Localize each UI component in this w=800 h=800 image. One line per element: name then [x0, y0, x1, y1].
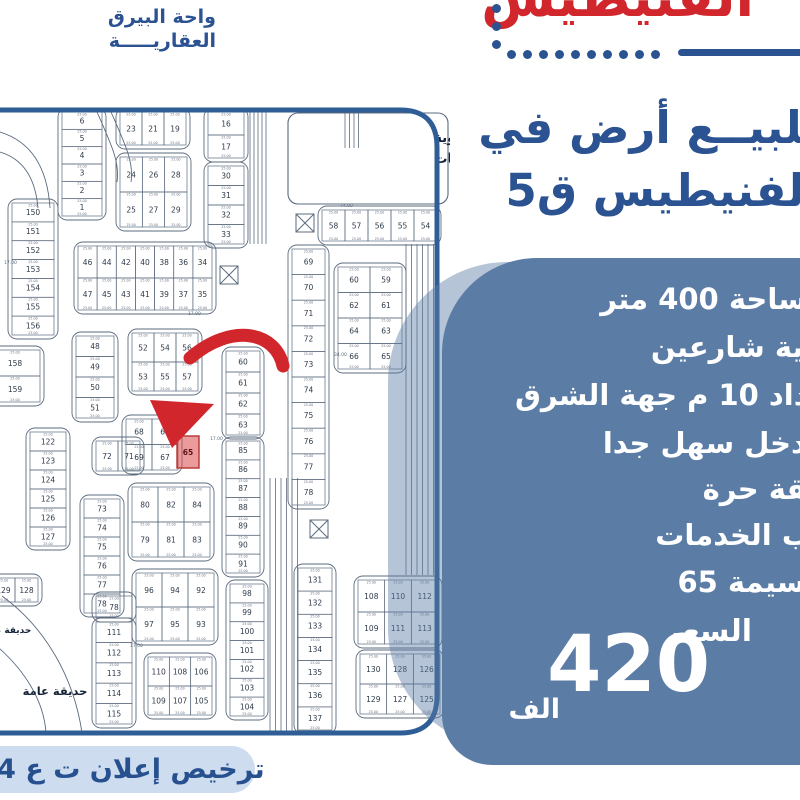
brand-line1: واحة البيرق	[0, 5, 216, 29]
svg-text:82: 82	[166, 500, 176, 509]
svg-text:104: 104	[240, 702, 255, 711]
svg-text:25.00: 25.00	[10, 376, 19, 380]
svg-text:25: 25	[126, 205, 136, 214]
svg-text:25.00: 25.00	[22, 598, 31, 602]
svg-text:46: 46	[83, 258, 93, 267]
svg-text:129: 129	[0, 586, 11, 595]
svg-text:76: 76	[304, 437, 314, 446]
svg-text:25.00: 25.00	[166, 522, 175, 526]
svg-text:25.00: 25.00	[198, 246, 207, 250]
svg-text:25.00: 25.00	[140, 522, 149, 526]
svg-text:25.00: 25.00	[367, 612, 376, 616]
svg-text:25.00: 25.00	[43, 470, 52, 474]
svg-text:25.00: 25.00	[182, 333, 191, 337]
svg-text:25.00: 25.00	[160, 445, 169, 449]
svg-text:25.00: 25.00	[109, 684, 118, 688]
svg-text:25.00: 25.00	[349, 344, 358, 348]
svg-text:152: 152	[26, 246, 41, 255]
svg-text:25.00: 25.00	[398, 237, 407, 241]
svg-text:25.00: 25.00	[28, 317, 37, 321]
svg-text:25.00: 25.00	[97, 499, 106, 503]
svg-text:25.00: 25.00	[304, 249, 313, 253]
svg-text:89: 89	[238, 522, 248, 531]
svg-text:25.00: 25.00	[144, 573, 153, 577]
svg-text:25.00: 25.00	[140, 278, 149, 282]
svg-text:25.00: 25.00	[109, 704, 118, 708]
svg-text:136: 136	[308, 691, 323, 700]
decor-blue-line	[678, 49, 800, 56]
svg-text:32: 32	[221, 211, 231, 220]
svg-text:85: 85	[238, 446, 248, 455]
svg-text:92: 92	[196, 586, 206, 595]
svg-text:137: 137	[308, 714, 323, 723]
svg-text:25.00: 25.00	[140, 306, 149, 310]
cadastral-map: رسة ثانويةبنات625.00525.00425.00325.0022…	[0, 0, 450, 800]
svg-text:25.00: 25.00	[238, 351, 247, 355]
svg-text:109: 109	[152, 696, 167, 705]
svg-text:25.00: 25.00	[304, 301, 313, 305]
svg-text:25.00: 25.00	[159, 306, 168, 310]
svg-text:25.00: 25.00	[329, 210, 338, 214]
svg-text:57: 57	[182, 372, 192, 381]
svg-text:25.00: 25.00	[90, 336, 99, 340]
svg-text:75: 75	[304, 411, 314, 420]
svg-text:41: 41	[140, 290, 150, 299]
svg-text:25.00: 25.00	[97, 594, 106, 598]
svg-text:25.00: 25.00	[179, 278, 188, 282]
svg-text:25.00: 25.00	[381, 293, 390, 297]
ad-title: للبيــع أرض في الفنيطيس ق5	[460, 96, 800, 222]
svg-text:78: 78	[97, 599, 107, 608]
svg-text:72: 72	[304, 334, 314, 343]
svg-text:25.00: 25.00	[28, 279, 37, 283]
svg-text:33: 33	[221, 230, 231, 239]
svg-text:25.00: 25.00	[160, 333, 169, 337]
svg-text:25.00: 25.00	[126, 157, 135, 161]
svg-text:122: 122	[41, 437, 56, 446]
feature-line: زاوية شارعين	[651, 330, 800, 364]
svg-text:25.00: 25.00	[109, 720, 118, 724]
svg-text:25.00: 25.00	[149, 192, 158, 196]
feature-line: وثيقة حرة	[703, 472, 800, 506]
svg-text:6: 6	[80, 116, 85, 125]
svg-text:67: 67	[160, 453, 170, 462]
dot	[603, 50, 612, 59]
svg-text:123: 123	[41, 456, 56, 465]
svg-text:17: 17	[221, 142, 231, 151]
svg-text:25.00: 25.00	[221, 166, 230, 170]
svg-text:2: 2	[80, 186, 85, 195]
dot	[492, 40, 501, 49]
svg-text:25.00: 25.00	[196, 607, 205, 611]
svg-text:25.00: 25.00	[77, 164, 86, 168]
svg-text:25.00: 25.00	[121, 278, 130, 282]
svg-text:24: 24	[126, 170, 136, 179]
dot	[635, 50, 644, 59]
svg-text:25.00: 25.00	[109, 622, 118, 626]
svg-text:25.00: 25.00	[90, 398, 99, 402]
svg-text:25.00: 25.00	[375, 237, 384, 241]
svg-text:73: 73	[97, 504, 107, 513]
svg-text:25.00: 25.00	[310, 684, 319, 688]
svg-text:133: 133	[308, 622, 323, 631]
svg-text:131: 131	[308, 575, 323, 584]
svg-text:25.00: 25.00	[28, 222, 37, 226]
svg-text:25.00: 25.00	[238, 414, 247, 418]
svg-text:25.00: 25.00	[166, 553, 175, 557]
svg-text:25.00: 25.00	[144, 637, 153, 641]
svg-text:25.00: 25.00	[221, 135, 230, 139]
svg-text:25.00: 25.00	[242, 679, 251, 683]
svg-text:51: 51	[90, 404, 100, 413]
svg-text:25.00: 25.00	[198, 278, 207, 282]
svg-text:25.00: 25.00	[197, 711, 206, 715]
svg-text:63: 63	[238, 420, 248, 429]
svg-text:42: 42	[121, 258, 131, 267]
svg-text:77: 77	[97, 580, 107, 589]
svg-text:74.00: 74.00	[340, 203, 353, 209]
svg-text:25.00: 25.00	[398, 210, 407, 214]
svg-text:25.00: 25.00	[126, 223, 135, 227]
svg-text:49: 49	[90, 363, 100, 372]
svg-text:25.00: 25.00	[138, 333, 147, 337]
svg-text:25.00: 25.00	[138, 362, 147, 366]
brand-line2: العقاريـــــة	[0, 29, 216, 53]
svg-text:56: 56	[375, 221, 385, 230]
svg-text:25.00: 25.00	[242, 584, 251, 588]
svg-text:25.00: 25.00	[197, 657, 206, 661]
svg-text:25.00: 25.00	[182, 387, 191, 391]
svg-text:25.00: 25.00	[102, 278, 111, 282]
license-pill: ترخيص إعلان ت ع 64	[0, 746, 255, 793]
svg-text:25.00: 25.00	[304, 377, 313, 381]
svg-text:36: 36	[179, 258, 189, 267]
svg-text:25.00: 25.00	[170, 573, 179, 577]
svg-text:25.00: 25.00	[140, 553, 149, 557]
svg-text:159: 159	[8, 385, 23, 394]
svg-text:61: 61	[238, 378, 248, 387]
dot	[507, 50, 516, 59]
svg-text:88: 88	[238, 503, 248, 512]
svg-text:106: 106	[194, 667, 209, 676]
svg-text:25.00: 25.00	[375, 210, 384, 214]
svg-text:25.00: 25.00	[121, 246, 130, 250]
svg-text:90: 90	[238, 541, 248, 550]
svg-text:25.00: 25.00	[90, 357, 99, 361]
dot	[492, 4, 501, 13]
svg-text:25.00: 25.00	[28, 203, 37, 207]
svg-text:28: 28	[171, 170, 181, 179]
svg-text:25.00: 25.00	[369, 654, 378, 658]
svg-text:25.00: 25.00	[10, 398, 19, 402]
svg-text:54: 54	[160, 343, 170, 352]
svg-text:25.00: 25.00	[0, 578, 8, 582]
svg-text:25.00: 25.00	[102, 441, 111, 445]
svg-text:108: 108	[173, 667, 188, 676]
svg-text:31: 31	[221, 191, 231, 200]
svg-text:17.00: 17.00	[4, 260, 17, 266]
svg-text:155: 155	[26, 303, 41, 312]
svg-text:50: 50	[90, 383, 100, 392]
svg-text:25.00: 25.00	[192, 522, 201, 526]
svg-text:25.00: 25.00	[159, 246, 168, 250]
svg-text:76: 76	[97, 561, 107, 570]
svg-text:25.00: 25.00	[304, 454, 313, 458]
svg-text:25.00: 25.00	[140, 246, 149, 250]
svg-text:75: 75	[97, 542, 107, 551]
svg-text:125: 125	[41, 494, 56, 503]
svg-text:154: 154	[26, 284, 41, 293]
svg-text:25.00: 25.00	[148, 112, 157, 116]
svg-text:25.00: 25.00	[196, 637, 205, 641]
svg-text:25.00: 25.00	[381, 267, 390, 271]
svg-text:79: 79	[140, 535, 150, 544]
svg-text:132: 132	[308, 599, 323, 608]
svg-text:25.00: 25.00	[121, 306, 130, 310]
svg-text:95: 95	[170, 620, 180, 629]
svg-text:25.00: 25.00	[138, 387, 147, 391]
svg-text:62: 62	[349, 301, 359, 310]
svg-text:25.00: 25.00	[304, 352, 313, 356]
svg-text:25.00: 25.00	[221, 225, 230, 229]
svg-text:25.00: 25.00	[97, 518, 106, 522]
svg-text:25.00: 25.00	[310, 638, 319, 642]
svg-text:25.00: 25.00	[159, 278, 168, 282]
svg-text:112: 112	[107, 648, 122, 657]
svg-text:109: 109	[364, 624, 379, 633]
svg-text:30: 30	[221, 172, 231, 181]
svg-text:25.00: 25.00	[22, 578, 31, 582]
svg-text:19: 19	[170, 124, 180, 133]
svg-text:130: 130	[366, 665, 381, 674]
svg-text:25.00: 25.00	[160, 466, 169, 470]
highlighted-plot: 65	[177, 436, 199, 468]
svg-text:135: 135	[308, 668, 323, 677]
dot	[523, 50, 532, 59]
svg-text:37: 37	[179, 290, 189, 299]
svg-text:25.00: 25.00	[170, 607, 179, 611]
svg-text:74: 74	[304, 386, 314, 395]
svg-text:17.00: 17.00	[130, 643, 143, 649]
svg-text:25.00: 25.00	[349, 365, 358, 369]
svg-text:73: 73	[304, 360, 314, 369]
svg-text:111: 111	[107, 628, 122, 637]
svg-text:113: 113	[107, 669, 122, 678]
price-unit: الف	[508, 694, 560, 725]
decor-dots-vertical	[492, 4, 501, 49]
svg-text:153: 153	[26, 265, 41, 274]
svg-text:34: 34	[198, 258, 208, 267]
svg-text:25.00: 25.00	[221, 154, 230, 158]
svg-text:151: 151	[26, 227, 41, 236]
svg-text:25.00: 25.00	[242, 698, 251, 702]
svg-text:58: 58	[329, 221, 339, 230]
svg-text:25.00: 25.00	[304, 326, 313, 330]
svg-text:25.00: 25.00	[304, 429, 313, 433]
svg-text:25.00: 25.00	[77, 199, 86, 203]
svg-text:25.00: 25.00	[97, 575, 106, 579]
svg-text:25.00: 25.00	[221, 112, 230, 116]
svg-text:25.00: 25.00	[310, 707, 319, 711]
svg-text:25.00: 25.00	[304, 501, 313, 505]
svg-text:60: 60	[349, 276, 359, 285]
svg-text:25.00: 25.00	[367, 580, 376, 584]
price-value: 420	[547, 626, 710, 704]
svg-text:25.00: 25.00	[304, 403, 313, 407]
svg-text:127: 127	[393, 695, 408, 704]
svg-text:25.00: 25.00	[369, 710, 378, 714]
svg-text:54: 54	[421, 221, 431, 230]
svg-text:25.00: 25.00	[192, 553, 201, 557]
svg-text:25.00: 25.00	[171, 192, 180, 196]
svg-text:25.00: 25.00	[381, 344, 390, 348]
svg-text:150: 150	[26, 208, 41, 217]
svg-text:25.00: 25.00	[421, 210, 430, 214]
svg-text:25.00: 25.00	[421, 237, 430, 241]
svg-text:39: 39	[159, 290, 169, 299]
svg-text:25.00: 25.00	[154, 686, 163, 690]
svg-text:25.00: 25.00	[148, 141, 157, 145]
svg-text:25.00: 25.00	[192, 487, 201, 491]
svg-text:66: 66	[349, 352, 359, 361]
svg-text:45: 45	[102, 290, 112, 299]
svg-text:25.00: 25.00	[171, 157, 180, 161]
svg-text:25.00: 25.00	[43, 508, 52, 512]
svg-text:57: 57	[352, 221, 362, 230]
svg-text:25.00: 25.00	[144, 607, 153, 611]
dot	[651, 50, 660, 59]
svg-text:25.00: 25.00	[97, 556, 106, 560]
svg-text:25.00: 25.00	[352, 237, 361, 241]
svg-text:21: 21	[148, 124, 158, 133]
svg-text:65: 65	[183, 448, 193, 457]
svg-text:124: 124	[41, 475, 56, 484]
svg-text:25.00: 25.00	[134, 445, 143, 449]
feature-line: ارتداد 10 م جهة الشرق	[515, 378, 800, 412]
svg-text:78: 78	[109, 603, 119, 612]
svg-text:25.00: 25.00	[126, 141, 135, 145]
svg-text:25.00: 25.00	[149, 157, 158, 161]
svg-text:40: 40	[140, 258, 150, 267]
svg-text:25.00: 25.00	[310, 568, 319, 572]
svg-text:71: 71	[304, 309, 314, 318]
svg-text:129: 129	[366, 695, 381, 704]
svg-text:34.00: 34.00	[334, 352, 347, 358]
svg-text:61: 61	[381, 301, 391, 310]
svg-text:63: 63	[381, 327, 391, 336]
svg-text:25.00: 25.00	[221, 205, 230, 209]
svg-text:25.00: 25.00	[43, 451, 52, 455]
decor-dots-horizontal	[507, 50, 660, 59]
svg-text:25.00: 25.00	[238, 431, 247, 435]
svg-text:25.00: 25.00	[242, 712, 251, 716]
svg-text:25.00: 25.00	[77, 182, 86, 186]
svg-text:25.00: 25.00	[238, 479, 247, 483]
svg-text:97: 97	[144, 620, 154, 629]
dot	[555, 50, 564, 59]
svg-text:25.00: 25.00	[329, 237, 338, 241]
svg-text:25.00: 25.00	[349, 293, 358, 297]
svg-text:25.00: 25.00	[43, 432, 52, 436]
svg-text:25.00: 25.00	[28, 331, 37, 335]
svg-text:25.00: 25.00	[102, 306, 111, 310]
svg-text:69: 69	[134, 453, 144, 462]
svg-text:25.00: 25.00	[154, 711, 163, 715]
svg-text:25.00: 25.00	[352, 210, 361, 214]
svg-text:55: 55	[160, 372, 170, 381]
svg-text:156: 156	[26, 321, 41, 330]
svg-text:25.00: 25.00	[109, 596, 118, 600]
svg-text:25.00: 25.00	[90, 414, 99, 418]
svg-text:62: 62	[238, 399, 248, 408]
svg-text:25.00: 25.00	[43, 527, 52, 531]
svg-text:78: 78	[304, 488, 314, 497]
svg-text:100: 100	[240, 627, 255, 636]
license-text: ترخيص إعلان ت ع 64	[0, 754, 265, 785]
svg-text:25.00: 25.00	[77, 147, 86, 151]
svg-text:25.00: 25.00	[196, 573, 205, 577]
svg-text:70: 70	[304, 283, 314, 292]
svg-text:25.00: 25.00	[242, 641, 251, 645]
svg-text:83: 83	[192, 535, 202, 544]
svg-text:25.00: 25.00	[149, 223, 158, 227]
svg-text:25.00: 25.00	[304, 480, 313, 484]
svg-text:91: 91	[238, 559, 248, 568]
ad-title-line1: للبيــع أرض في	[460, 96, 800, 159]
svg-text:43: 43	[121, 290, 131, 299]
svg-text:110: 110	[152, 667, 167, 676]
svg-text:25.00: 25.00	[28, 241, 37, 245]
svg-text:102: 102	[240, 665, 255, 674]
svg-text:25.00: 25.00	[160, 362, 169, 366]
svg-text:25.00: 25.00	[242, 603, 251, 607]
svg-text:25.00: 25.00	[109, 663, 118, 667]
svg-text:59: 59	[381, 276, 391, 285]
svg-text:25.00: 25.00	[126, 112, 135, 116]
svg-text:64: 64	[349, 327, 359, 336]
svg-text:25.00: 25.00	[140, 487, 149, 491]
svg-text:25.00: 25.00	[83, 278, 92, 282]
svg-text:38: 38	[159, 258, 169, 267]
svg-text:98: 98	[242, 589, 252, 598]
svg-text:23: 23	[126, 124, 136, 133]
svg-text:حديقة عامة: حديقة عامة	[0, 626, 31, 636]
svg-text:128: 128	[19, 586, 34, 595]
svg-text:105: 105	[194, 696, 209, 705]
dot	[571, 50, 580, 59]
svg-text:حديقة عامة: حديقة عامة	[23, 684, 88, 698]
svg-text:25.00: 25.00	[43, 542, 52, 546]
dot	[492, 22, 501, 31]
svg-text:60: 60	[238, 357, 248, 366]
svg-text:72: 72	[102, 452, 112, 461]
svg-text:115: 115	[107, 710, 122, 719]
svg-text:25.00: 25.00	[83, 246, 92, 250]
svg-text:25.00: 25.00	[367, 640, 376, 644]
svg-text:108: 108	[364, 592, 379, 601]
svg-text:25.00: 25.00	[170, 112, 179, 116]
svg-text:25.00: 25.00	[43, 489, 52, 493]
svg-text:25.00: 25.00	[221, 240, 230, 244]
info-panel: المساحة 400 مترزاوية شارعينارتداد 10 م ج…	[442, 258, 800, 765]
svg-text:25.00: 25.00	[77, 212, 86, 216]
svg-text:25.00: 25.00	[395, 710, 404, 714]
svg-text:25.00: 25.00	[126, 192, 135, 196]
svg-text:25.00: 25.00	[134, 419, 143, 423]
svg-text:25.00: 25.00	[310, 592, 319, 596]
svg-text:25.00: 25.00	[221, 186, 230, 190]
svg-text:16: 16	[221, 119, 231, 128]
